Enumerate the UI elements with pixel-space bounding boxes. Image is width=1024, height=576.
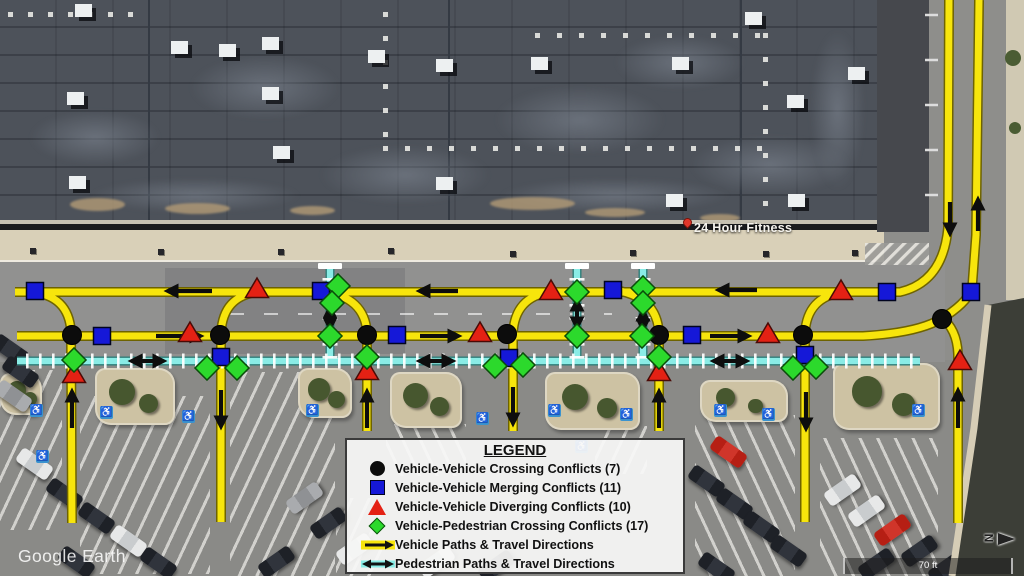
ped-crossing-conflict-marker	[318, 324, 342, 348]
google-earth-conflict-map: ♿♿♿♿♿♿♿♿♿♿♿♿	[0, 0, 1024, 576]
vehicle-path-outline	[221, 292, 258, 522]
merging-conflict-marker	[879, 284, 896, 301]
legend-item-label: Vehicle-Vehicle Crossing Conflicts (7)	[395, 462, 620, 476]
compass-arrow-icon	[998, 533, 1015, 545]
bush	[1009, 122, 1021, 134]
merging-conflict-marker	[27, 283, 44, 300]
legend-item: Pedestrian Paths & Travel Directions	[347, 554, 683, 573]
legend-item: Vehicle-Vehicle Crossing Conflicts (7)	[347, 459, 683, 478]
legend-symbol-pedestrian-arrow	[359, 557, 395, 571]
crosswalk-cap	[631, 263, 655, 269]
legend-symbol-triangle	[359, 499, 395, 515]
crossing-conflict-marker	[63, 326, 82, 345]
legend-symbol-circle	[359, 461, 395, 476]
legend-item: Vehicle Paths & Travel Directions	[347, 535, 683, 554]
vehicle-path-outline	[17, 0, 979, 336]
legend-item-label: Vehicle-Pedestrian Crossing Conflicts (1…	[395, 519, 648, 533]
vehicle-path	[941, 317, 958, 523]
crosswalk-cap	[565, 263, 589, 269]
building-edge-strip	[877, 0, 929, 232]
vehicle-path-outline	[15, 0, 949, 292]
legend-symbol-vehicle-arrow	[359, 538, 395, 552]
crossing-conflict-marker	[211, 326, 230, 345]
crossing-conflict-marker	[498, 325, 517, 344]
legend-symbol-diamond	[359, 520, 395, 532]
scale-text: 70 ft	[919, 560, 938, 571]
vehicle-path-outline	[30, 292, 72, 523]
diverging-conflict-marker	[949, 350, 972, 370]
crossing-conflict-marker	[794, 326, 813, 345]
vehicle-path-outline	[805, 292, 843, 522]
scale-bar: 70 ft	[843, 558, 1013, 574]
legend-symbol-square	[359, 480, 395, 495]
crossing-conflict-marker	[358, 326, 377, 345]
legend-title: LEGEND	[347, 442, 683, 459]
place-label: 24 Hour Fitness	[694, 221, 792, 235]
legend-item: Vehicle-Vehicle Merging Conflicts (11)	[347, 478, 683, 497]
legend-panel: LEGEND Vehicle-Vehicle Crossing Conflict…	[345, 438, 685, 574]
compass: N	[984, 529, 1024, 551]
bush	[1005, 50, 1021, 66]
vehicle-path	[17, 0, 979, 336]
legend-item-label: Vehicle Paths & Travel Directions	[395, 538, 594, 552]
crossing-conflict-marker	[933, 310, 952, 329]
ped-crossing-conflict-marker	[565, 280, 589, 304]
compass-north-label: N	[981, 534, 995, 543]
merging-conflict-marker	[963, 284, 980, 301]
google-earth-watermark: Google Earth	[18, 546, 126, 567]
legend-item-label: Vehicle-Vehicle Diverging Conflicts (10)	[395, 500, 631, 514]
vehicle-path	[15, 0, 949, 292]
right-sidewalk	[1006, 0, 1024, 300]
legend-item-label: Pedestrian Paths & Travel Directions	[395, 557, 615, 571]
legend-item: Vehicle-Vehicle Diverging Conflicts (10)	[347, 497, 683, 516]
merging-conflict-marker	[389, 327, 406, 344]
crosswalk-cap	[318, 263, 342, 269]
merging-conflict-marker	[213, 349, 230, 366]
legend-rows: Vehicle-Vehicle Crossing Conflicts (7)Ve…	[347, 459, 683, 573]
hatched-curb-zone	[865, 243, 929, 265]
merging-conflict-marker	[94, 328, 111, 345]
merging-conflict-marker	[605, 282, 622, 299]
legend-item-label: Vehicle-Vehicle Merging Conflicts (11)	[395, 481, 621, 495]
merging-conflict-marker	[684, 327, 701, 344]
legend-item: Vehicle-Pedestrian Crossing Conflicts (1…	[347, 516, 683, 535]
ped-crossing-conflict-marker	[565, 324, 589, 348]
